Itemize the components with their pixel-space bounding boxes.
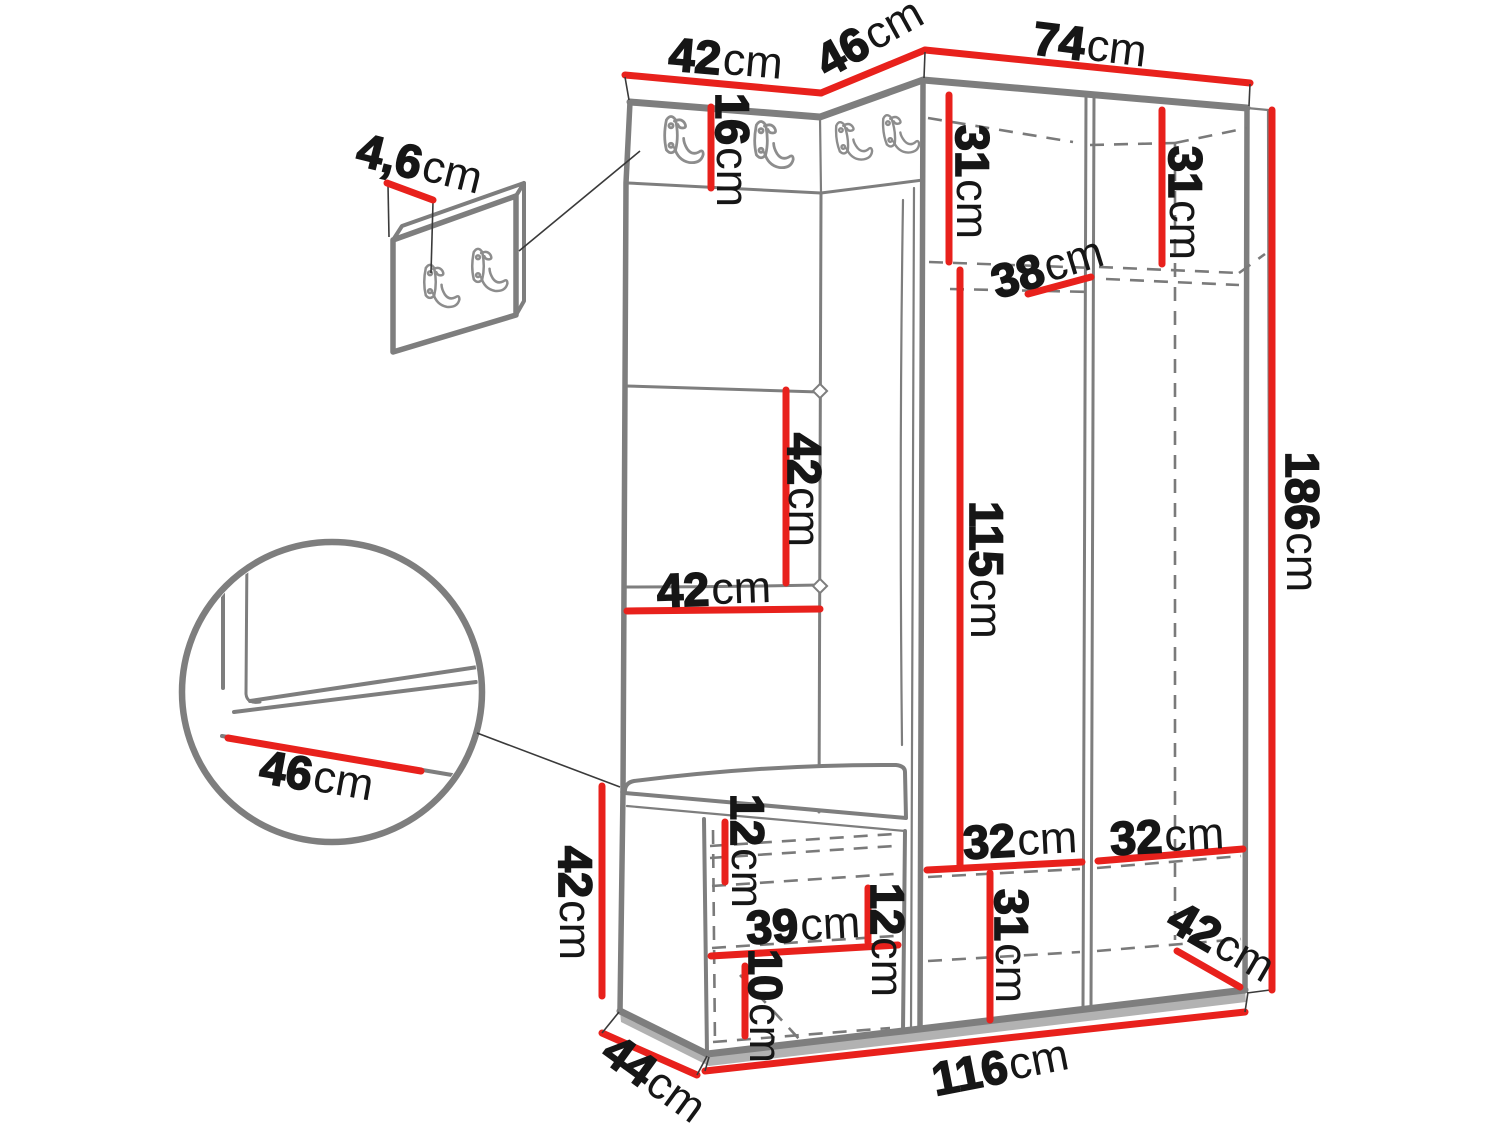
dimension-labels: 42cm 46cm 74cm 16cm 4,6cm 31cm 31cm 38cm… — [256, 0, 1329, 1125]
dimension-diagram-canvas: 42cm 46cm 74cm 16cm 4,6cm 31cm 31cm 38cm… — [0, 0, 1500, 1125]
corner-seat-detail — [182, 542, 620, 842]
dim-label-total-height: 186cm — [1277, 452, 1330, 592]
dim-label-right-door-width: 32cm — [1109, 806, 1226, 865]
dim-label-wardrobe-top-width: 74cm — [1030, 11, 1150, 78]
upholstery-button-diamond — [813, 579, 827, 593]
dim-label-bench-middle-gap: 12cm — [862, 883, 915, 997]
dim-label-total-width: 116cm — [927, 1027, 1072, 1105]
leader-line — [519, 151, 640, 251]
dim-label-panel-width: 42cm — [656, 560, 772, 617]
dim-label-bench-shelf-width: 39cm — [745, 895, 862, 954]
upholstery-button-diamond — [813, 384, 827, 398]
dim-label-bench-bottom-gap: 10cm — [740, 949, 793, 1063]
dim-label-bench-height: 42cm — [550, 846, 603, 960]
coat-hook-strip — [665, 111, 920, 167]
dim-label-top-shelf-depth: 38cm — [985, 224, 1110, 308]
dim-label-left-door-width: 32cm — [962, 810, 1079, 869]
dim-label-left-section-top-width: 42cm — [667, 27, 785, 90]
dim-label-panel-square-height: 42cm — [779, 433, 832, 547]
dim-label-upper-right-compartment: 31cm — [1160, 146, 1213, 260]
dim-label-hook-strip-height: 16cm — [707, 93, 760, 207]
dim-label-bottom-compartment: 31cm — [986, 889, 1039, 1003]
leader-line — [477, 733, 620, 787]
dim-label-upper-left-compartment: 31cm — [947, 125, 1000, 239]
furniture-dimension-diagram: 42cm 46cm 74cm 16cm 4,6cm 31cm 31cm 38cm… — [0, 0, 1500, 1125]
dim-label-hanging-section-height: 115cm — [961, 501, 1014, 639]
dim-label-bench-top-gap: 12cm — [722, 794, 775, 908]
